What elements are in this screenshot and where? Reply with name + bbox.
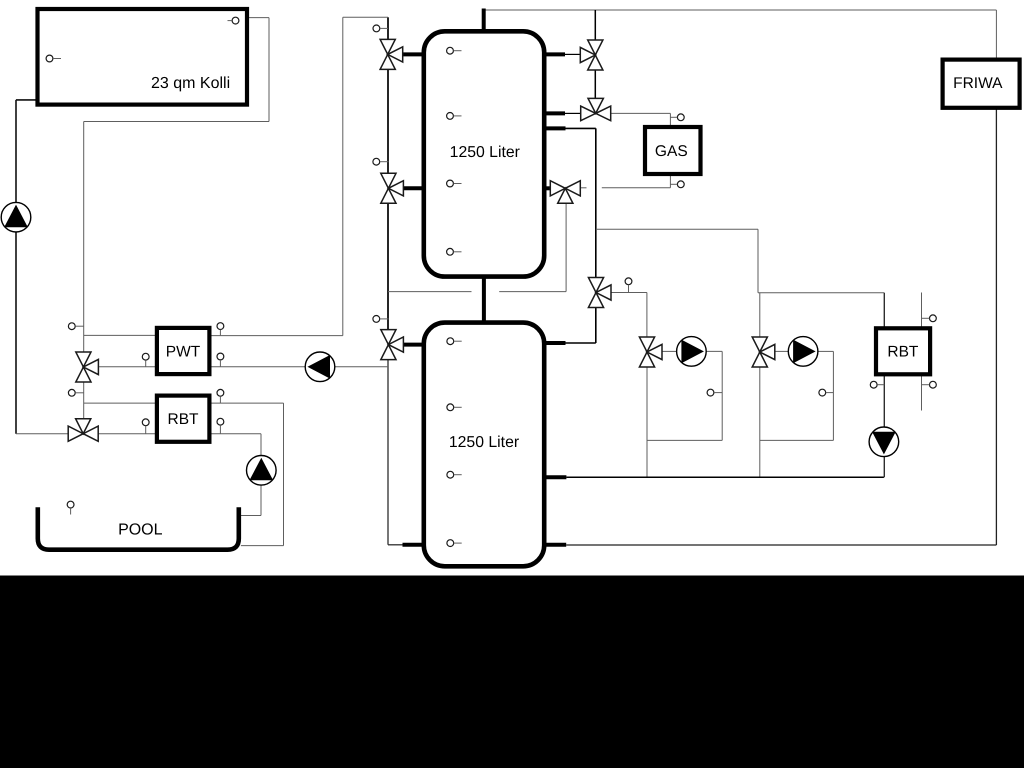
svg-text:23 qm Kolli: 23 qm Kolli <box>151 75 230 92</box>
svg-text:RBT: RBT <box>168 411 200 428</box>
svg-text:1250 Liter: 1250 Liter <box>449 434 519 451</box>
svg-text:1250 Liter: 1250 Liter <box>450 144 520 161</box>
svg-text:PWT: PWT <box>166 344 201 361</box>
svg-text:FRIWA: FRIWA <box>953 75 1003 92</box>
svg-text:RBT: RBT <box>887 344 919 361</box>
svg-text:POOL: POOL <box>118 522 163 539</box>
svg-text:GAS: GAS <box>655 143 688 160</box>
